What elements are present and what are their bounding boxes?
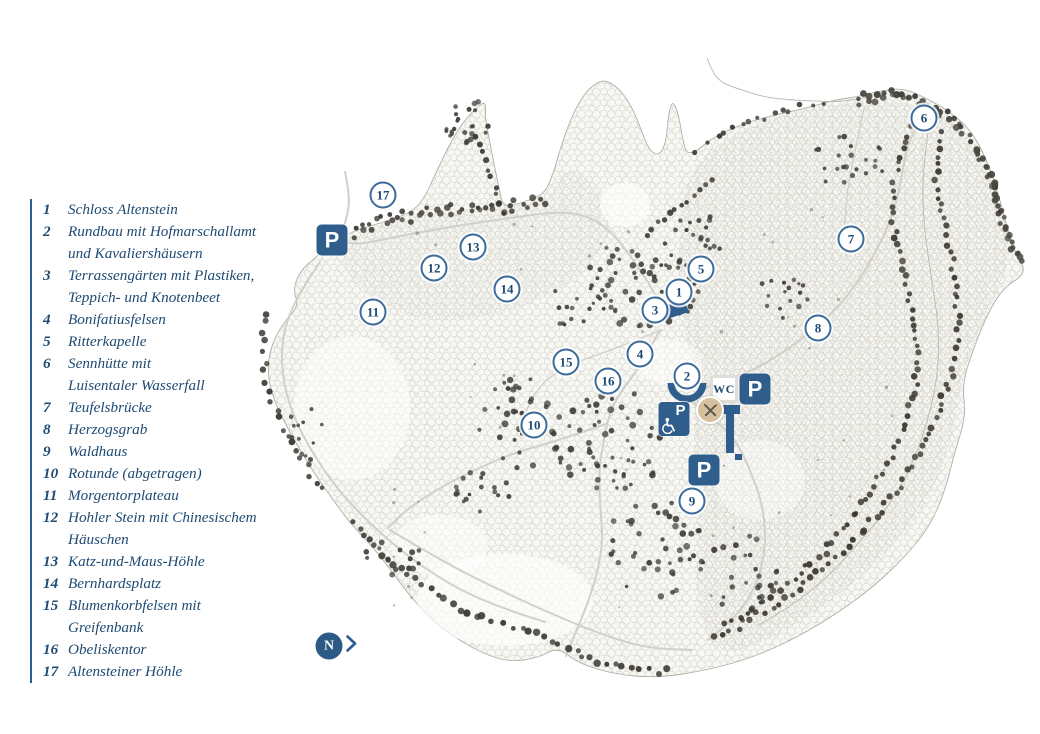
north-label: N bbox=[324, 638, 334, 654]
legend-item-12: 12Hohler Stein mit ChinesischemHäuschen bbox=[43, 507, 257, 551]
legend-item-number: 11 bbox=[43, 485, 68, 507]
legend-item-label: Rotunde (abgetragen) bbox=[68, 463, 202, 485]
wheelchair-icon bbox=[661, 417, 678, 434]
map-marker-6: 6 bbox=[911, 105, 938, 132]
legend-item-16: 16Obeliskentor bbox=[43, 639, 257, 661]
legend-item-number: 15 bbox=[43, 595, 68, 639]
map-marker-number: 9 bbox=[689, 493, 696, 509]
wc-label: WC bbox=[713, 382, 735, 397]
legend-item-2: 2Rundbau mit Hofmarschallamtund Kavalier… bbox=[43, 221, 257, 265]
legend-item-15: 15Blumenkorbfelsen mitGreifenbank bbox=[43, 595, 257, 639]
restaurant-sign bbox=[696, 396, 724, 424]
legend-item-label: Schloss Altenstein bbox=[68, 199, 178, 221]
legend-item-line: Häuschen bbox=[68, 529, 257, 551]
map-marker-number: 10 bbox=[528, 417, 541, 433]
legend-item-number: 7 bbox=[43, 397, 68, 419]
crossed-cutlery-icon bbox=[702, 402, 719, 419]
legend-item-line: Teppich- und Knotenbeet bbox=[68, 287, 254, 309]
accessible-parking-sign: P bbox=[659, 402, 690, 436]
legend-item-line: Greifenbank bbox=[68, 617, 201, 639]
legend-item-line: Altensteiner Höhle bbox=[68, 661, 182, 683]
legend-item-label: Sennhütte mitLuisentaler Wasserfall bbox=[68, 353, 205, 397]
legend-item-line: Rundbau mit Hofmarschallamt bbox=[68, 221, 256, 243]
map-marker-1: 1 bbox=[666, 279, 693, 306]
legend-item-line: Ritterkapelle bbox=[68, 331, 146, 353]
legend-item-number: 13 bbox=[43, 551, 68, 573]
map-marker-number: 5 bbox=[698, 261, 705, 277]
map-marker-number: 16 bbox=[602, 373, 615, 389]
legend-item-line: Luisentaler Wasserfall bbox=[68, 375, 205, 397]
legend-item-number: 3 bbox=[43, 265, 68, 309]
parking-sign: P bbox=[689, 455, 720, 486]
legend-item-11: 11Morgentorplateau bbox=[43, 485, 257, 507]
map-marker-11: 11 bbox=[360, 299, 387, 326]
legend-item-8: 8Herzogsgrab bbox=[43, 419, 257, 441]
legend-item-17: 17Altensteiner Höhle bbox=[43, 661, 257, 683]
legend-item-label: Hohler Stein mit ChinesischemHäuschen bbox=[68, 507, 257, 551]
legend-item-number: 8 bbox=[43, 419, 68, 441]
map-marker-number: 15 bbox=[560, 354, 573, 370]
legend-item-number: 1 bbox=[43, 199, 68, 221]
legend-item-line: Blumenkorbfelsen mit bbox=[68, 595, 201, 617]
legend-item-line: Terrassengärten mit Plastiken, bbox=[68, 265, 254, 287]
legend-item-label: Bonifatiusfelsen bbox=[68, 309, 166, 331]
parking-letter: P bbox=[697, 457, 712, 483]
park-map-page: 1Schloss Altenstein2Rundbau mit Hofmarsc… bbox=[0, 0, 1040, 734]
legend-item-label: Morgentorplateau bbox=[68, 485, 179, 507]
map-marker-13: 13 bbox=[460, 234, 487, 261]
map-marker-number: 3 bbox=[652, 302, 659, 318]
legend-list: 1Schloss Altenstein2Rundbau mit Hofmarsc… bbox=[43, 199, 257, 683]
map-marker-9: 9 bbox=[679, 488, 706, 515]
legend-item-5: 5Ritterkapelle bbox=[43, 331, 257, 353]
legend-item-line: Teufelsbrücke bbox=[68, 397, 152, 419]
legend-item-line: und Kavaliershäusern bbox=[68, 243, 256, 265]
legend: 1Schloss Altenstein2Rundbau mit Hofmarsc… bbox=[30, 199, 257, 683]
legend-item-line: Sennhütte mit bbox=[68, 353, 205, 375]
legend-item-label: Waldhaus bbox=[68, 441, 127, 463]
parking-sign: P bbox=[740, 374, 771, 405]
legend-item-1: 1Schloss Altenstein bbox=[43, 199, 257, 221]
legend-item-label: Blumenkorbfelsen mitGreifenbank bbox=[68, 595, 201, 639]
map-marker-number: 11 bbox=[367, 304, 379, 320]
map-marker-number: 8 bbox=[815, 320, 822, 336]
legend-item-7: 7Teufelsbrücke bbox=[43, 397, 257, 419]
legend-item-line: Bernhardsplatz bbox=[68, 573, 161, 595]
legend-item-label: Bernhardsplatz bbox=[68, 573, 161, 595]
map-marker-15: 15 bbox=[553, 349, 580, 376]
legend-item-label: Herzogsgrab bbox=[68, 419, 147, 441]
legend-item-number: 6 bbox=[43, 353, 68, 397]
legend-item-14: 14Bernhardsplatz bbox=[43, 573, 257, 595]
legend-item-label: Terrassengärten mit Plastiken,Teppich- u… bbox=[68, 265, 254, 309]
legend-item-number: 12 bbox=[43, 507, 68, 551]
legend-item-number: 2 bbox=[43, 221, 68, 265]
map-marker-number: 4 bbox=[637, 346, 644, 362]
parking-letter: P bbox=[748, 376, 763, 402]
map-marker-7: 7 bbox=[838, 226, 865, 253]
legend-item-13: 13Katz-und-Maus-Höhle bbox=[43, 551, 257, 573]
legend-item-3: 3Terrassengärten mit Plastiken,Teppich- … bbox=[43, 265, 257, 309]
legend-item-line: Herzogsgrab bbox=[68, 419, 147, 441]
legend-item-line: Morgentorplateau bbox=[68, 485, 179, 507]
legend-item-number: 10 bbox=[43, 463, 68, 485]
legend-item-label: Teufelsbrücke bbox=[68, 397, 152, 419]
map-marker-number: 2 bbox=[684, 368, 691, 384]
small-building-shape bbox=[735, 454, 742, 460]
legend-item-label: Altensteiner Höhle bbox=[68, 661, 182, 683]
map-marker-number: 12 bbox=[428, 260, 441, 276]
legend-item-line: Bonifatiusfelsen bbox=[68, 309, 166, 331]
legend-item-number: 17 bbox=[43, 661, 68, 683]
map-marker-number: 13 bbox=[467, 239, 480, 255]
map-marker-3: 3 bbox=[642, 297, 669, 324]
map-marker-10: 10 bbox=[521, 412, 548, 439]
legend-item-number: 14 bbox=[43, 573, 68, 595]
map-marker-number: 17 bbox=[377, 187, 390, 203]
map-marker-number: 7 bbox=[848, 231, 855, 247]
legend-item-label: Katz-und-Maus-Höhle bbox=[68, 551, 205, 573]
map-marker-number: 14 bbox=[501, 281, 514, 297]
map-marker-17: 17 bbox=[370, 182, 397, 209]
map-marker-2: 2 bbox=[674, 363, 701, 390]
legend-item-number: 5 bbox=[43, 331, 68, 353]
legend-item-line: Hohler Stein mit Chinesischem bbox=[68, 507, 257, 529]
map-marker-8: 8 bbox=[805, 315, 832, 342]
legend-item-line: Schloss Altenstein bbox=[68, 199, 178, 221]
legend-item-label: Rundbau mit Hofmarschallamtund Kavaliers… bbox=[68, 221, 256, 265]
parking-letter: P bbox=[325, 227, 340, 253]
legend-item-number: 9 bbox=[43, 441, 68, 463]
legend-item-10: 10Rotunde (abgetragen) bbox=[43, 463, 257, 485]
legend-item-line: Obeliskentor bbox=[68, 639, 146, 661]
map-marker-14: 14 bbox=[494, 276, 521, 303]
parking-sign: P bbox=[317, 225, 348, 256]
legend-item-number: 4 bbox=[43, 309, 68, 331]
north-direction-chevron-icon bbox=[345, 634, 358, 659]
map-marker-number: 6 bbox=[921, 110, 928, 126]
parking-letter: P bbox=[675, 402, 685, 419]
legend-item-line: Waldhaus bbox=[68, 441, 127, 463]
legend-item-6: 6Sennhütte mitLuisentaler Wasserfall bbox=[43, 353, 257, 397]
legend-item-number: 16 bbox=[43, 639, 68, 661]
map-marker-5: 5 bbox=[688, 256, 715, 283]
map-marker-number: 1 bbox=[676, 284, 683, 300]
legend-item-line: Katz-und-Maus-Höhle bbox=[68, 551, 205, 573]
map-marker-16: 16 bbox=[595, 368, 622, 395]
map-marker-12: 12 bbox=[421, 255, 448, 282]
legend-item-label: Obeliskentor bbox=[68, 639, 146, 661]
legend-item-label: Ritterkapelle bbox=[68, 331, 146, 353]
legend-item-9: 9Waldhaus bbox=[43, 441, 257, 463]
map-marker-4: 4 bbox=[627, 341, 654, 368]
north-compass: N bbox=[316, 633, 343, 660]
legend-item-line: Rotunde (abgetragen) bbox=[68, 463, 202, 485]
legend-item-4: 4Bonifatiusfelsen bbox=[43, 309, 257, 331]
